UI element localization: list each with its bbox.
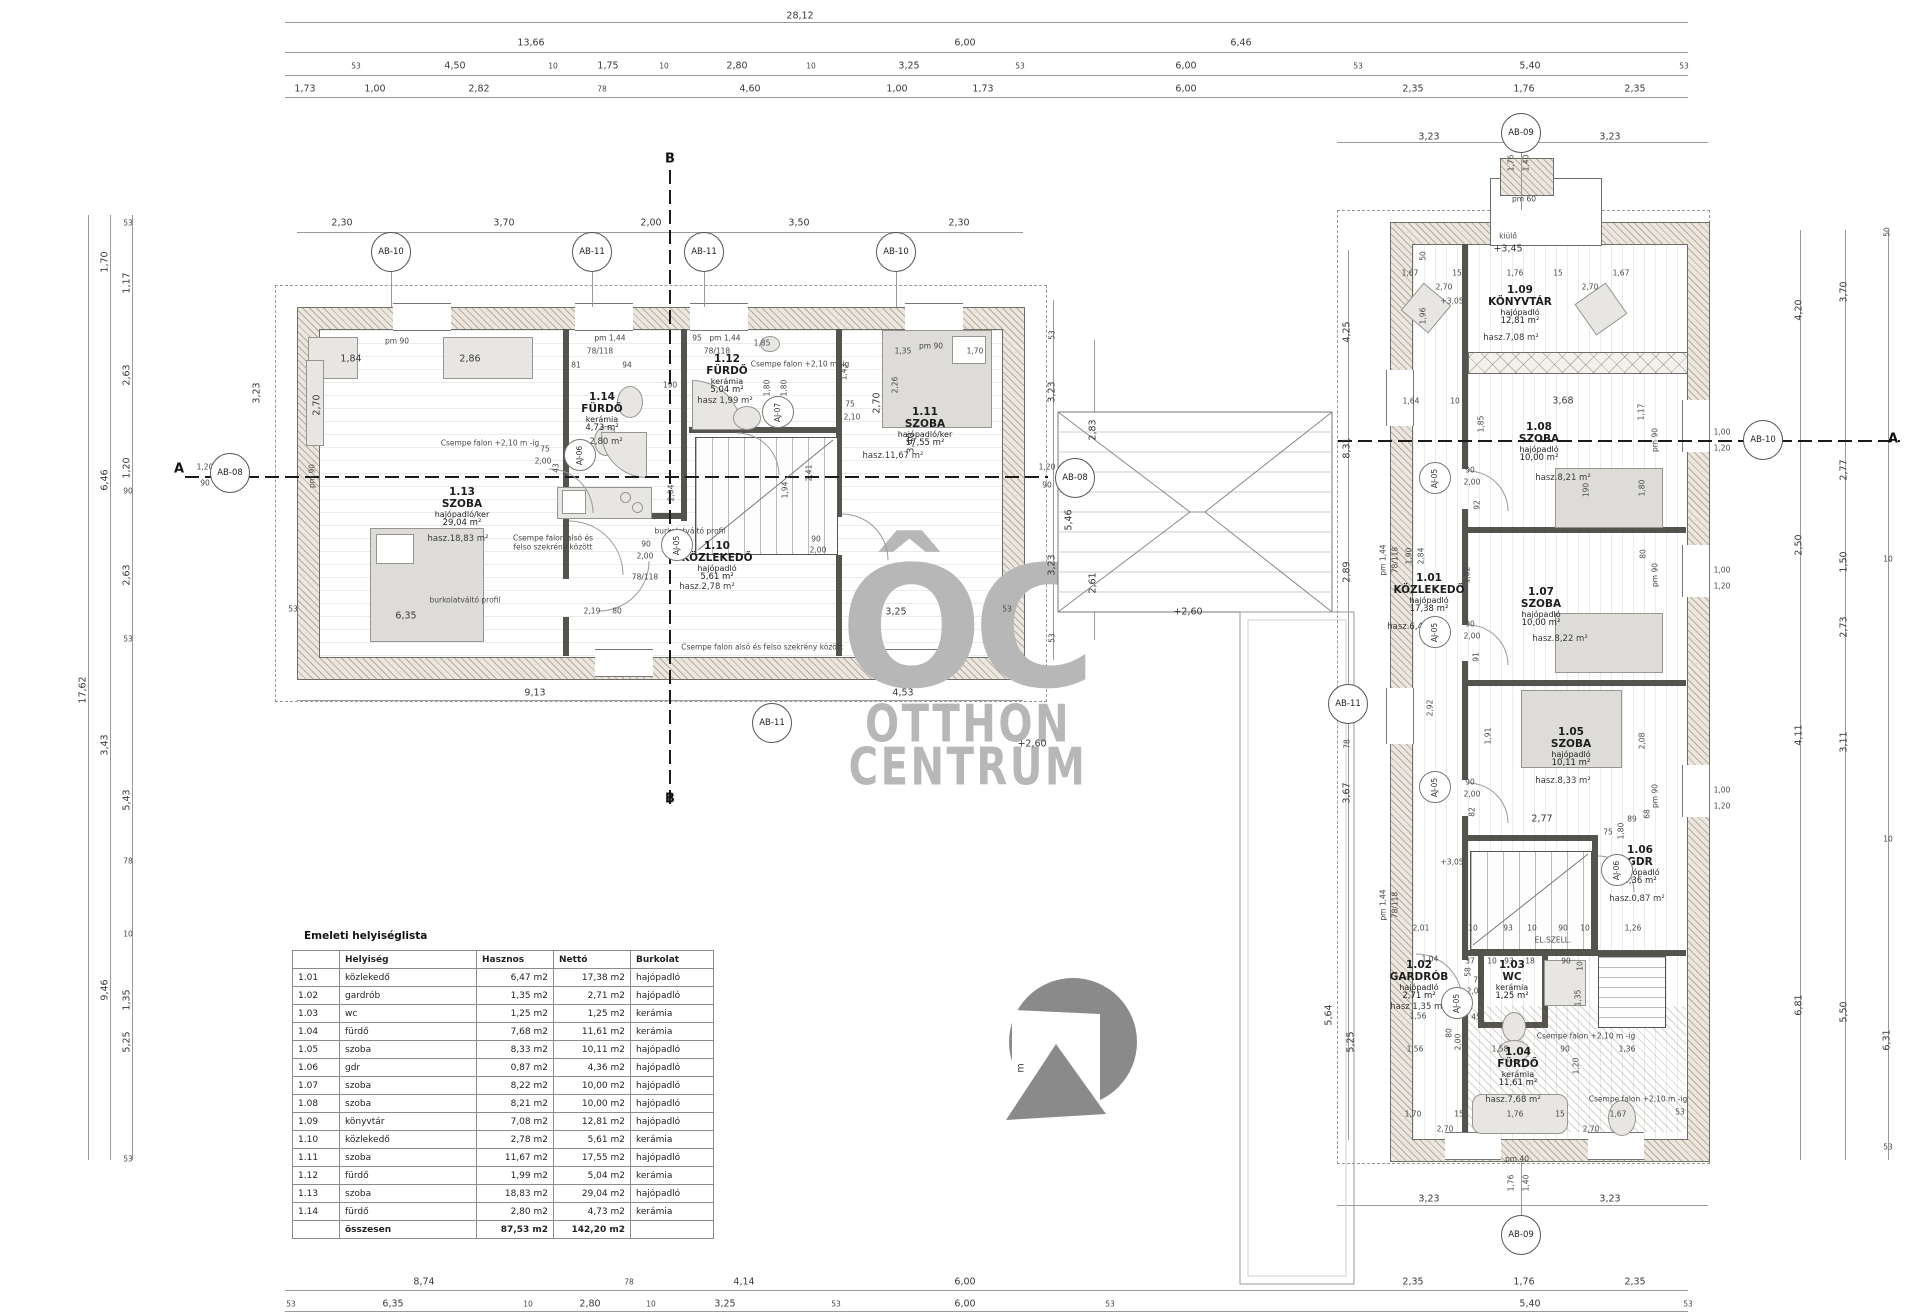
room-label-text: FÜRDŐ <box>581 404 622 416</box>
table-cell: könyvtár <box>340 1113 477 1131</box>
table-cell: szoba <box>340 1149 477 1167</box>
table-cell: 142,20 m2 <box>554 1221 631 1239</box>
table-cell: közlekedő <box>340 969 477 987</box>
table-cell: 1.12 <box>293 1167 340 1185</box>
table-cell <box>293 1221 340 1239</box>
room-usable-area: hasz.11,67 m² <box>863 452 924 462</box>
room-label-text: KÖZLEKEDŐ <box>681 553 752 565</box>
table-cell: 1,99 m2 <box>477 1167 554 1185</box>
table-cell: hajópadló <box>631 1059 714 1077</box>
room-label-text: FÜRDŐ <box>706 366 747 378</box>
room-label-text: 1,25 m² <box>1495 992 1528 1002</box>
door-marker-AJ-05: AJ-05 <box>1419 616 1451 648</box>
table-cell: 1.03 <box>293 1005 340 1023</box>
section-marker-AB-10: AB-10 <box>876 232 916 272</box>
room-label-text: 1.07 <box>1521 587 1561 599</box>
room-usable-area: hasz.7,08 m² <box>1483 334 1539 344</box>
room-label-text: 10,00 m² <box>1519 454 1559 464</box>
door-marker-label: AJ-05 <box>1452 993 1461 1012</box>
room-label-text: 10,00 m² <box>1521 619 1561 629</box>
table-cell: 2,78 m2 <box>477 1131 554 1149</box>
room-list: Emeleti helyiséglista HelyiségHasznosNet… <box>292 930 714 1239</box>
table-cell: 5,04 m2 <box>554 1167 631 1185</box>
room-label-1.12: 1.12FÜRDŐkerámia5,04 m² <box>706 354 747 396</box>
room-label-text: 1.01 <box>1393 573 1464 585</box>
table-cell: 7,68 m2 <box>477 1023 554 1041</box>
room-label-text: 1.04 <box>1497 1047 1538 1059</box>
table-header: Nettó <box>554 951 631 969</box>
table-cell: gdr <box>340 1059 477 1077</box>
table-row: 1.14fürdő2,80 m24,73 m2kerámia <box>293 1203 714 1221</box>
door-marker-AJ-05: AJ-05 <box>1419 462 1451 494</box>
table-cell: 11,67 m2 <box>477 1149 554 1167</box>
table-cell: hajópadló <box>631 1113 714 1131</box>
room-usable-area: 2,80 m² <box>589 438 622 448</box>
table-cell: kerámia <box>631 1023 714 1041</box>
table-row: 1.01közlekedő6,47 m217,38 m2hajópadló <box>293 969 714 987</box>
table-cell: hajópadló <box>631 1095 714 1113</box>
door-marker-AJ-05: AJ-05 <box>1419 771 1451 803</box>
room-label-text: KÖNYVTÁR <box>1488 297 1552 309</box>
room-label-1.01: 1.01KÖZLEKEDŐhajópadló17,38 m² <box>1393 573 1464 615</box>
table-cell: 2,80 m2 <box>477 1203 554 1221</box>
table-cell: 5,61 m2 <box>554 1131 631 1149</box>
room-label-text: 5,04 m² <box>706 386 747 396</box>
table-cell: 10,00 m2 <box>554 1095 631 1113</box>
door-marker-label: AJ-05 <box>1430 468 1439 487</box>
door-marker-AJ-07: AJ-07 <box>762 396 794 428</box>
section-marker-AB-10: AB-10 <box>1743 420 1783 460</box>
table-header: Helyiség <box>340 951 477 969</box>
room-label-text: 1.11 <box>898 407 953 419</box>
table-cell: 1,25 m2 <box>554 1005 631 1023</box>
section-marker-AB-09: AB-09 <box>1501 113 1541 153</box>
table-cell: hajópadló <box>631 1041 714 1059</box>
table-row: 1.09könyvtár7,08 m212,81 m2hajópadló <box>293 1113 714 1131</box>
room-label-text: 11,61 m² <box>1497 1079 1538 1089</box>
room-list-title: Emeleti helyiséglista <box>304 930 714 942</box>
room-label-text: 29,04 m² <box>435 519 490 529</box>
floor-plan-sheet: ÔC OTTHON CENTRUM <box>0 0 1920 1313</box>
table-header <box>293 951 340 969</box>
table-cell: kerámia <box>631 1005 714 1023</box>
table-cell: 1.02 <box>293 987 340 1005</box>
room-label-text: FÜRDŐ <box>1497 1059 1538 1071</box>
room-label-text: 1.13 <box>435 487 490 499</box>
room-label-text: 1.05 <box>1551 727 1591 739</box>
room-label-1.13: 1.13SZOBAhajópadló/ker29,04 m² <box>435 487 490 529</box>
door-marker-label: AJ-05 <box>1430 622 1439 641</box>
room-usable-area: hasz.2,78 m² <box>679 583 735 593</box>
room-label-text: SZOBA <box>898 419 953 431</box>
room-label-text: 1.02 <box>1390 960 1449 972</box>
table-row: 1.07szoba8,22 m210,00 m2hajópadló <box>293 1077 714 1095</box>
room-label-text: SZOBA <box>1519 434 1559 446</box>
table-cell: 7,08 m2 <box>477 1113 554 1131</box>
door-marker-AJ-06: AJ-06 <box>1601 854 1633 886</box>
room-label-1.08: 1.08SZOBAhajópadló10,00 m² <box>1519 422 1559 464</box>
table-cell: 8,33 m2 <box>477 1041 554 1059</box>
table-cell: 1.06 <box>293 1059 340 1077</box>
room-label-text: 1.12 <box>706 354 747 366</box>
table-cell: 1.08 <box>293 1095 340 1113</box>
door-marker-label: AJ-05 <box>672 535 681 554</box>
room-usable-area: hasz 1,99 m² <box>697 397 753 407</box>
table-cell: hajópadló <box>631 1149 714 1167</box>
room-label-text: SZOBA <box>1521 599 1561 611</box>
table-cell: kerámia <box>631 1167 714 1185</box>
table-cell: 4,36 m2 <box>554 1059 631 1077</box>
table-cell: 17,55 m2 <box>554 1149 631 1167</box>
room-label-1.04: 1.04FÜRDŐkerámia11,61 m² <box>1497 1047 1538 1089</box>
room-label-text: 10,11 m² <box>1551 759 1591 769</box>
room-usable-area: hasz.8,22 m² <box>1532 635 1588 645</box>
room-usable-area: hasz.7,68 m² <box>1485 1096 1541 1106</box>
table-cell: 2,71 m2 <box>554 987 631 1005</box>
table-header: Burkolat <box>631 951 714 969</box>
table-cell: kerámia <box>631 1203 714 1221</box>
table-cell: wc <box>340 1005 477 1023</box>
table-cell: 1.07 <box>293 1077 340 1095</box>
table-cell: 1.14 <box>293 1203 340 1221</box>
room-label-text: 4,73 m² <box>581 424 622 434</box>
table-row: 1.05szoba8,33 m210,11 m2hajópadló <box>293 1041 714 1059</box>
table-cell: 18,83 m2 <box>477 1185 554 1203</box>
room-label-text: 17,38 m² <box>1393 605 1464 615</box>
table-cell: 1.05 <box>293 1041 340 1059</box>
table-cell: hajópadló <box>631 1077 714 1095</box>
table-cell: hajópadló <box>631 969 714 987</box>
table-cell: összesen <box>340 1221 477 1239</box>
table-cell: fürdő <box>340 1203 477 1221</box>
room-label-layer: 1.01KÖZLEKEDŐhajópadló17,38 m²hasz.6,47 … <box>0 0 1920 1313</box>
table-cell: szoba <box>340 1041 477 1059</box>
room-usable-area: hasz.18,83 m² <box>428 535 489 545</box>
section-marker-AB-11: AB-11 <box>572 232 612 272</box>
room-label-1.07: 1.07SZOBAhajópadló10,00 m² <box>1521 587 1561 629</box>
room-label-text: 2,71 m² <box>1390 992 1449 1002</box>
table-cell: gardrób <box>340 987 477 1005</box>
table-cell: 29,04 m2 <box>554 1185 631 1203</box>
room-label-1.02: 1.02GARDRÓBhajópadló2,71 m² <box>1390 960 1449 1002</box>
table-header: Hasznos <box>477 951 554 969</box>
door-marker-AJ-06: AJ-06 <box>564 439 596 471</box>
door-marker-label: AJ-06 <box>1612 860 1621 879</box>
table-row: 1.10közlekedő2,78 m25,61 m2kerámia <box>293 1131 714 1149</box>
room-usable-area: hasz.0,87 m² <box>1609 895 1665 905</box>
section-marker-AB-09: AB-09 <box>1501 1215 1541 1255</box>
table-cell: fürdő <box>340 1167 477 1185</box>
table-cell: hajópadló <box>631 1185 714 1203</box>
room-label-text: KÖZLEKEDŐ <box>1393 585 1464 597</box>
table-cell: 11,61 m2 <box>554 1023 631 1041</box>
room-label-1.11: 1.11SZOBAhajópadló/ker17,55 m² <box>898 407 953 449</box>
room-label-text: 12,81 m² <box>1488 317 1552 327</box>
room-list-table: HelyiségHasznosNettóBurkolat 1.01közleke… <box>292 950 714 1239</box>
room-label-text: GARDRÓB <box>1390 972 1449 984</box>
room-label-text: 1.09 <box>1488 285 1552 297</box>
table-cell: 4,73 m2 <box>554 1203 631 1221</box>
door-marker-AJ-05: AJ-05 <box>661 529 693 561</box>
room-label-text: 1.14 <box>581 392 622 404</box>
table-row: 1.11szoba11,67 m217,55 m2hajópadló <box>293 1149 714 1167</box>
table-cell: 1.01 <box>293 969 340 987</box>
room-label-text: 17,55 m² <box>898 439 953 449</box>
table-cell: szoba <box>340 1095 477 1113</box>
table-cell: fürdő <box>340 1023 477 1041</box>
room-label-text: 1.08 <box>1519 422 1559 434</box>
room-label-1.03: 1.03WCkerámia1,25 m² <box>1495 960 1528 1002</box>
table-cell: 1,35 m2 <box>477 987 554 1005</box>
table-cell: 1.11 <box>293 1149 340 1167</box>
table-cell: szoba <box>340 1185 477 1203</box>
table-cell: 1.04 <box>293 1023 340 1041</box>
section-marker-AB-08: AB-08 <box>210 453 250 493</box>
section-marker-AB-11: AB-11 <box>1328 684 1368 724</box>
table-cell: kerámia <box>631 1131 714 1149</box>
room-usable-area: hasz.8,21 m² <box>1535 474 1591 484</box>
table-row: 1.12fürdő1,99 m25,04 m2kerámia <box>293 1167 714 1185</box>
table-cell: 0,87 m2 <box>477 1059 554 1077</box>
table-cell: 6,47 m2 <box>477 969 554 987</box>
door-marker-AJ-05: AJ-05 <box>1441 987 1473 1019</box>
section-marker-AB-11: AB-11 <box>752 703 792 743</box>
door-marker-label: AJ-05 <box>1430 777 1439 796</box>
section-marker-AB-11: AB-11 <box>684 232 724 272</box>
door-marker-label: AJ-07 <box>773 402 782 421</box>
room-label-text: 5,61 m² <box>681 573 752 583</box>
room-label-text: 1.06 <box>1620 845 1659 857</box>
table-cell <box>631 1221 714 1239</box>
table-cell: 1.09 <box>293 1113 340 1131</box>
table-row: összesen87,53 m2142,20 m2 <box>293 1221 714 1239</box>
table-cell: 1,25 m2 <box>477 1005 554 1023</box>
table-cell: 10,00 m2 <box>554 1077 631 1095</box>
table-row: 1.02gardrób1,35 m22,71 m2hajópadló <box>293 987 714 1005</box>
table-cell: 8,21 m2 <box>477 1095 554 1113</box>
table-cell: 1.13 <box>293 1185 340 1203</box>
table-cell: 17,38 m2 <box>554 969 631 987</box>
table-cell: 10,11 m2 <box>554 1041 631 1059</box>
section-marker-AB-10: AB-10 <box>371 232 411 272</box>
table-cell: 87,53 m2 <box>477 1221 554 1239</box>
room-label-1.05: 1.05SZOBAhajópadló10,11 m² <box>1551 727 1591 769</box>
room-usable-area: hasz 1,35 m² <box>1390 1003 1446 1013</box>
room-usable-area: hasz.8,33 m² <box>1535 777 1591 787</box>
door-marker-label: AJ-06 <box>575 445 584 464</box>
room-label-1.09: 1.09KÖNYVTÁRhajópadló12,81 m² <box>1488 285 1552 327</box>
room-label-text: 1.03 <box>1495 960 1528 972</box>
table-row: 1.03wc1,25 m21,25 m2kerámia <box>293 1005 714 1023</box>
table-cell: 8,22 m2 <box>477 1077 554 1095</box>
table-row: 1.08szoba8,21 m210,00 m2hajópadló <box>293 1095 714 1113</box>
section-marker-AB-08: AB-08 <box>1055 458 1095 498</box>
table-row: 1.06gdr0,87 m24,36 m2hajópadló <box>293 1059 714 1077</box>
table-cell: 12,81 m2 <box>554 1113 631 1131</box>
room-label-text: SZOBA <box>1551 739 1591 751</box>
table-cell: szoba <box>340 1077 477 1095</box>
table-cell: hajópadló <box>631 987 714 1005</box>
table-row: 1.13szoba18,83 m229,04 m2hajópadló <box>293 1185 714 1203</box>
table-row: 1.04fürdő7,68 m211,61 m2kerámia <box>293 1023 714 1041</box>
room-label-text: WC <box>1495 972 1528 984</box>
table-cell: 1.10 <box>293 1131 340 1149</box>
room-label-1.14: 1.14FÜRDŐkerámia4,73 m² <box>581 392 622 434</box>
room-label-text: SZOBA <box>435 499 490 511</box>
table-cell: közlekedő <box>340 1131 477 1149</box>
